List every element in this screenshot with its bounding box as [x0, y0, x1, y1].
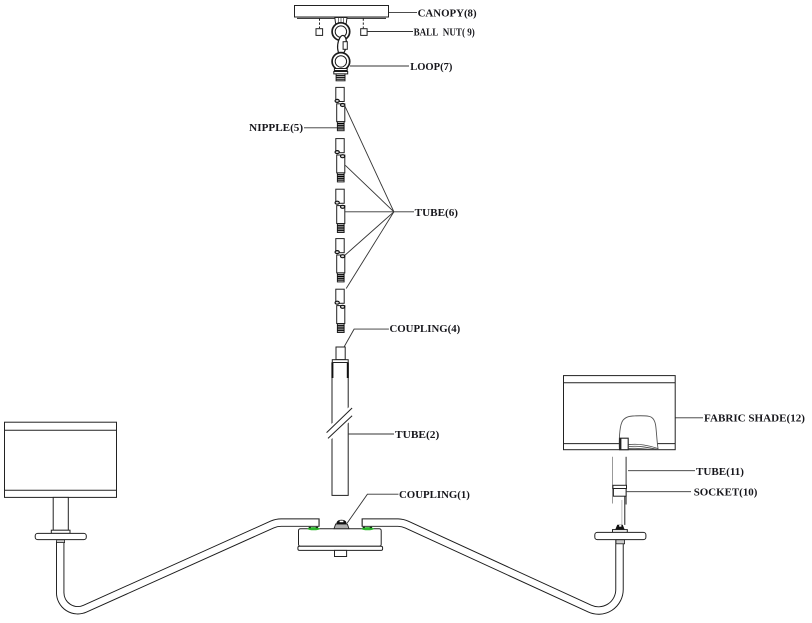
- svg-text:SOCKET(10): SOCKET(10): [694, 486, 758, 498]
- svg-text:TUBE(11): TUBE(11): [696, 466, 744, 478]
- svg-text:FABRIC SHADE(12): FABRIC SHADE(12): [704, 412, 805, 424]
- svg-text:COUPLING(1): COUPLING(1): [399, 489, 470, 501]
- svg-text:LOOP(7): LOOP(7): [410, 61, 453, 73]
- svg-text:COUPLING(4): COUPLING(4): [390, 323, 461, 335]
- svg-text:NIPPLE(5): NIPPLE(5): [249, 122, 303, 134]
- svg-text:TUBE(6): TUBE(6): [415, 207, 459, 219]
- svg-text:BALL NUT( 9): BALL NUT( 9): [414, 27, 475, 39]
- svg-text:TUBE(2): TUBE(2): [395, 429, 440, 441]
- svg-text:CANOPY(8): CANOPY(8): [418, 8, 477, 20]
